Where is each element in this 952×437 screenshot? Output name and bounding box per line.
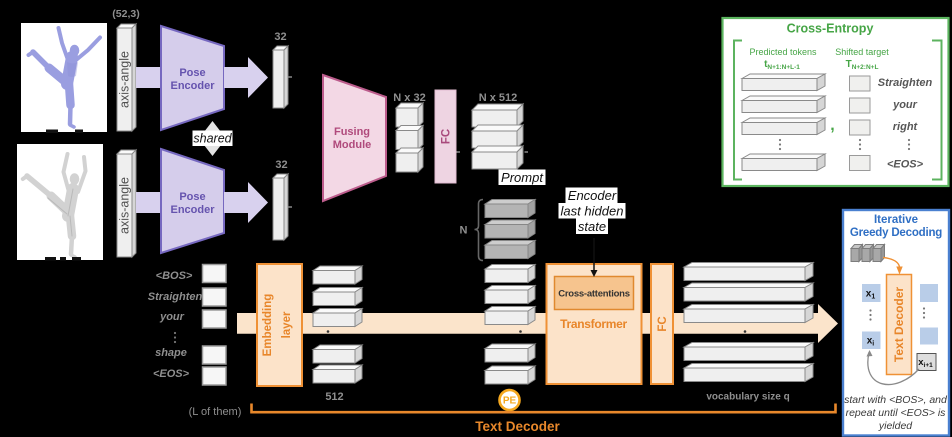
svg-text:Encoder: Encoder	[170, 80, 215, 92]
svg-text:(L of them): (L of them)	[189, 406, 242, 418]
svg-text:repeat until <EOS> is: repeat until <EOS> is	[846, 407, 947, 419]
svg-text:Greedy Decoding: Greedy Decoding	[850, 227, 942, 239]
svg-text:right: right	[893, 121, 919, 133]
svg-text:start with <BOS>, and: start with <BOS>, and	[844, 394, 948, 406]
svg-text:Predicted tokens: Predicted tokens	[749, 47, 817, 57]
svg-text:Encoder: Encoder	[568, 188, 617, 203]
svg-text:Straighten: Straighten	[148, 291, 203, 303]
svg-text:Text Decoder: Text Decoder	[475, 419, 560, 434]
svg-text:Prompt: Prompt	[501, 170, 544, 185]
svg-text:shared: shared	[193, 132, 232, 146]
svg-text:Pose: Pose	[179, 67, 205, 79]
svg-text:Cross-attentions: Cross-attentions	[558, 289, 629, 300]
svg-text:Cross-Entropy: Cross-Entropy	[787, 22, 874, 36]
svg-text:FC: FC	[657, 316, 669, 331]
svg-text:Embedding: Embedding	[262, 294, 274, 357]
svg-text:axis-angle: axis-angle	[118, 51, 132, 108]
svg-text:shape: shape	[155, 347, 187, 359]
svg-text:<BOS>: <BOS>	[156, 270, 193, 282]
svg-text:Fusing: Fusing	[334, 126, 370, 138]
svg-text:Shifted target: Shifted target	[835, 47, 889, 57]
svg-text:,: ,	[830, 117, 834, 134]
svg-text:32: 32	[275, 159, 287, 171]
svg-text:Pose: Pose	[179, 191, 205, 203]
svg-text:your: your	[159, 311, 185, 323]
svg-text:Encoder: Encoder	[170, 204, 215, 216]
svg-text:PE: PE	[503, 396, 517, 407]
svg-text:vocabulary size q: vocabulary size q	[706, 392, 789, 403]
svg-text:32: 32	[274, 31, 286, 43]
svg-text:FC: FC	[441, 129, 453, 144]
svg-text:<EOS>: <EOS>	[887, 159, 924, 171]
svg-text:Straighten: Straighten	[878, 77, 933, 89]
svg-text:layer: layer	[281, 311, 293, 338]
svg-text:Text Decoder: Text Decoder	[892, 287, 906, 362]
svg-text:yielded: yielded	[878, 420, 913, 432]
svg-text:last hidden: last hidden	[561, 204, 624, 219]
svg-text:your: your	[892, 99, 918, 111]
svg-text:Iterative: Iterative	[874, 214, 918, 226]
svg-text:Transformer: Transformer	[560, 317, 627, 331]
svg-text:512: 512	[325, 391, 343, 403]
svg-text:N x 32: N x 32	[393, 92, 425, 104]
svg-text:Module: Module	[333, 139, 372, 151]
svg-text:axis-angle: axis-angle	[118, 177, 132, 234]
svg-text:(52,3): (52,3)	[112, 8, 139, 20]
svg-text:N: N	[460, 225, 468, 237]
svg-text:N x 512: N x 512	[479, 92, 518, 104]
svg-text:state: state	[578, 219, 606, 234]
svg-text:<EOS>: <EOS>	[153, 368, 190, 380]
